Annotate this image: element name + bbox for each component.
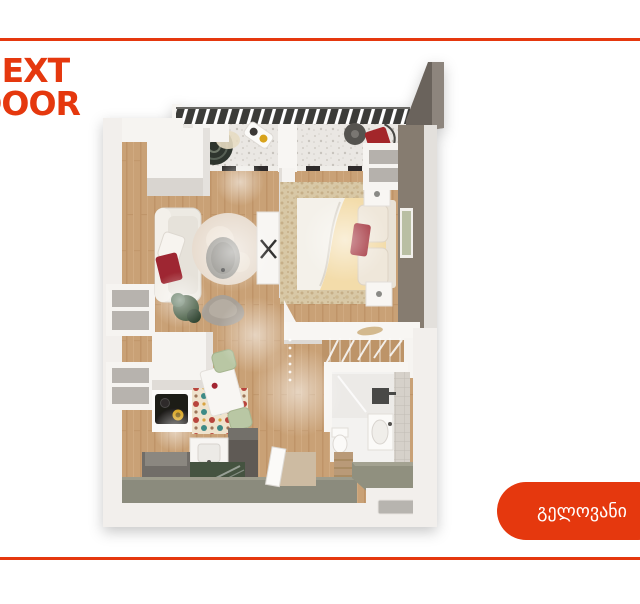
wall-niche-upper [106,284,155,336]
bathroom-tile-wall [394,372,410,462]
right-wall [413,328,437,527]
wall-art [400,208,413,258]
floorplan [103,62,444,527]
wall-niche-lower [106,362,155,410]
bottom-divider [0,557,640,560]
entry-door [266,447,316,487]
roof-wedge [406,62,444,131]
balcony-railing [176,108,410,124]
location-badge[interactable]: გელოვანი [497,482,640,540]
wardrobe [147,128,210,196]
location-badge-label: გელოვანი [537,501,627,522]
bathroom-sink [368,414,393,450]
toilet [332,428,348,453]
